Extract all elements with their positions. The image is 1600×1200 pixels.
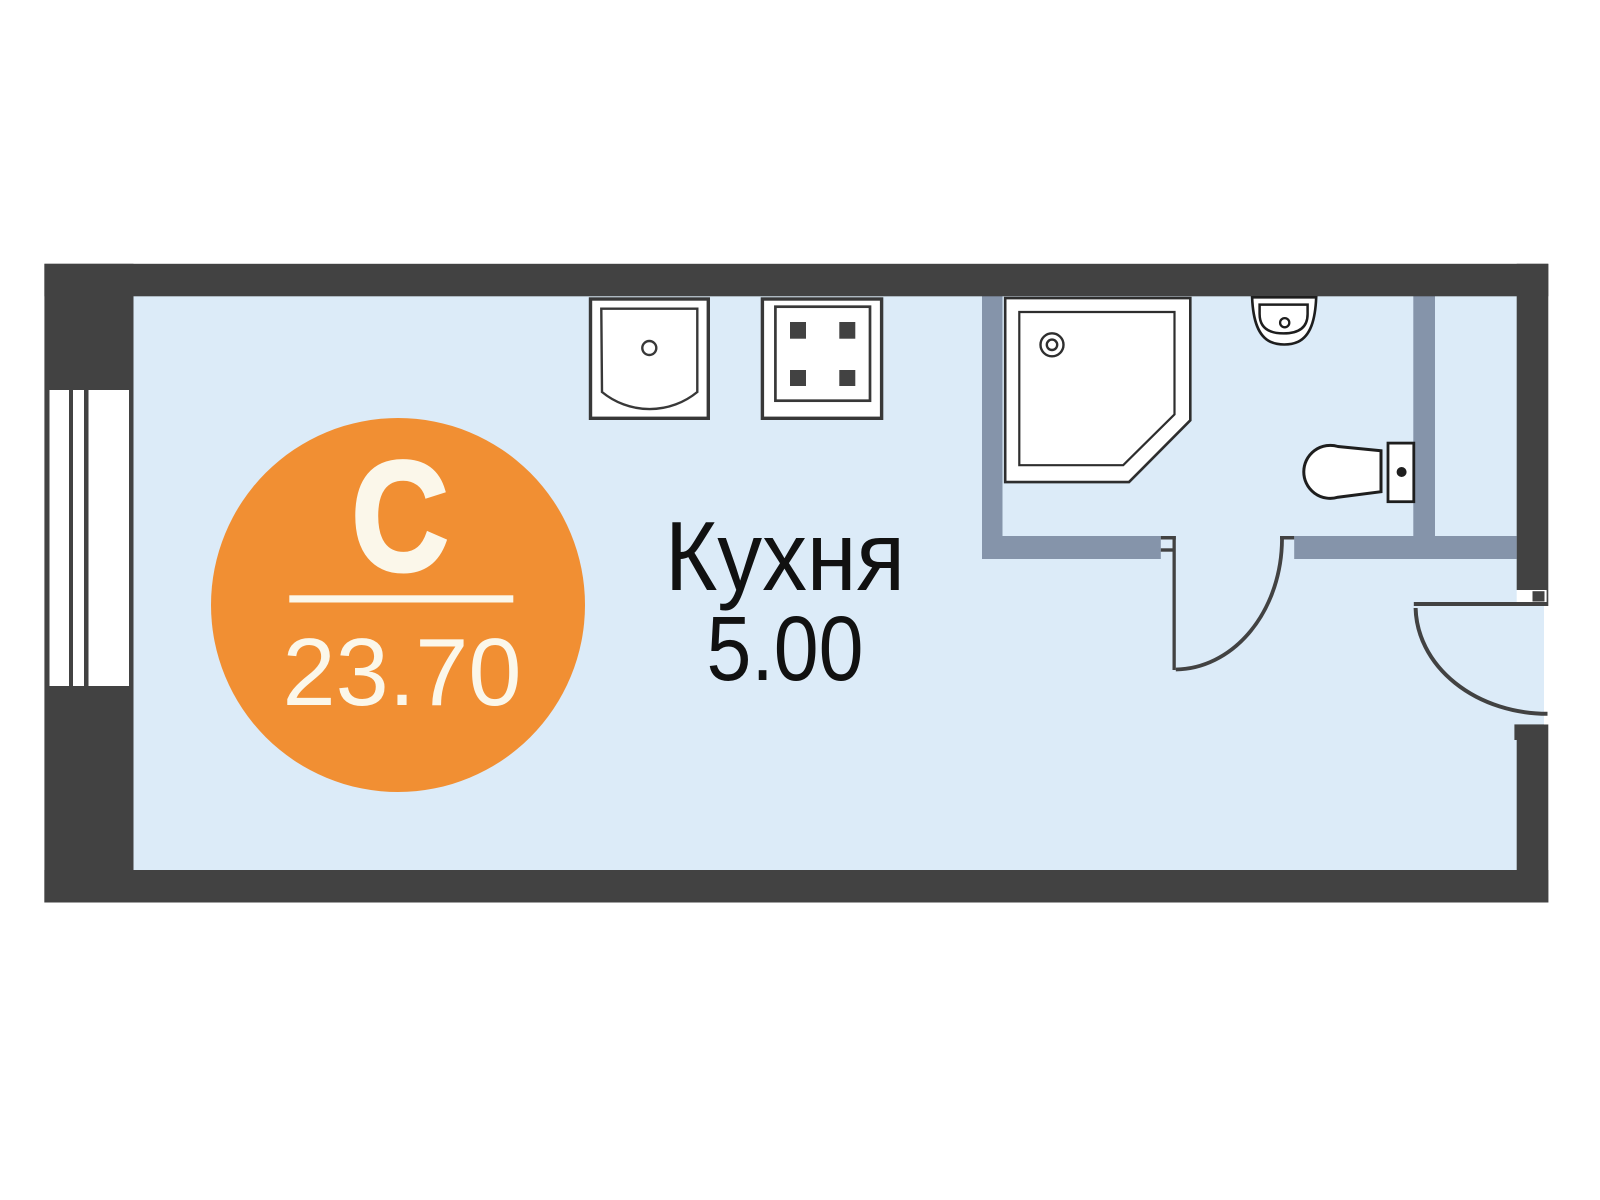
- svg-text:Кухня: Кухня: [665, 501, 905, 611]
- svg-text:С: С: [352, 430, 449, 604]
- svg-text:23.70: 23.70: [283, 619, 522, 726]
- svg-text:5.00: 5.00: [707, 598, 864, 700]
